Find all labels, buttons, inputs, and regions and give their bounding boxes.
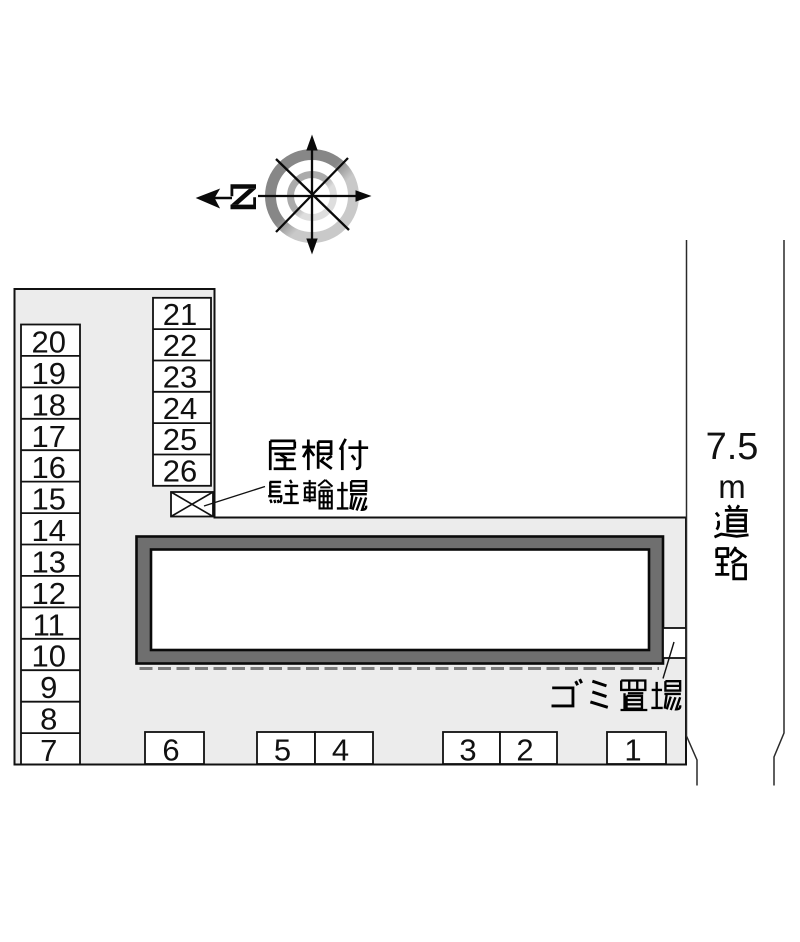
svg-text:5: 5 — [274, 733, 291, 768]
svg-text:16: 16 — [31, 450, 65, 485]
svg-text:1: 1 — [624, 733, 641, 768]
svg-text:2: 2 — [516, 733, 533, 768]
svg-text:20: 20 — [31, 325, 65, 360]
svg-text:24: 24 — [163, 391, 197, 426]
svg-text:13: 13 — [31, 544, 65, 579]
svg-text:9: 9 — [40, 670, 57, 705]
svg-text:6: 6 — [162, 733, 179, 768]
svg-text:21: 21 — [163, 297, 197, 332]
svg-text:12: 12 — [31, 576, 65, 611]
svg-text:4: 4 — [332, 733, 349, 768]
svg-text:11: 11 — [33, 607, 65, 642]
svg-text:23: 23 — [163, 360, 197, 395]
svg-text:3: 3 — [459, 733, 476, 768]
svg-text:14: 14 — [31, 513, 65, 548]
svg-text:22: 22 — [163, 328, 197, 363]
svg-text:26: 26 — [163, 454, 197, 489]
svg-text:8: 8 — [40, 702, 57, 737]
svg-text:10: 10 — [31, 639, 65, 674]
svg-text:7: 7 — [40, 733, 57, 768]
svg-text:17: 17 — [31, 419, 65, 454]
svg-text:7.5: 7.5 — [706, 426, 759, 468]
svg-text:25: 25 — [163, 422, 197, 457]
svg-text:15: 15 — [31, 482, 65, 517]
svg-text:m: m — [718, 468, 746, 505]
svg-text:19: 19 — [31, 356, 65, 391]
svg-text:18: 18 — [31, 387, 65, 422]
